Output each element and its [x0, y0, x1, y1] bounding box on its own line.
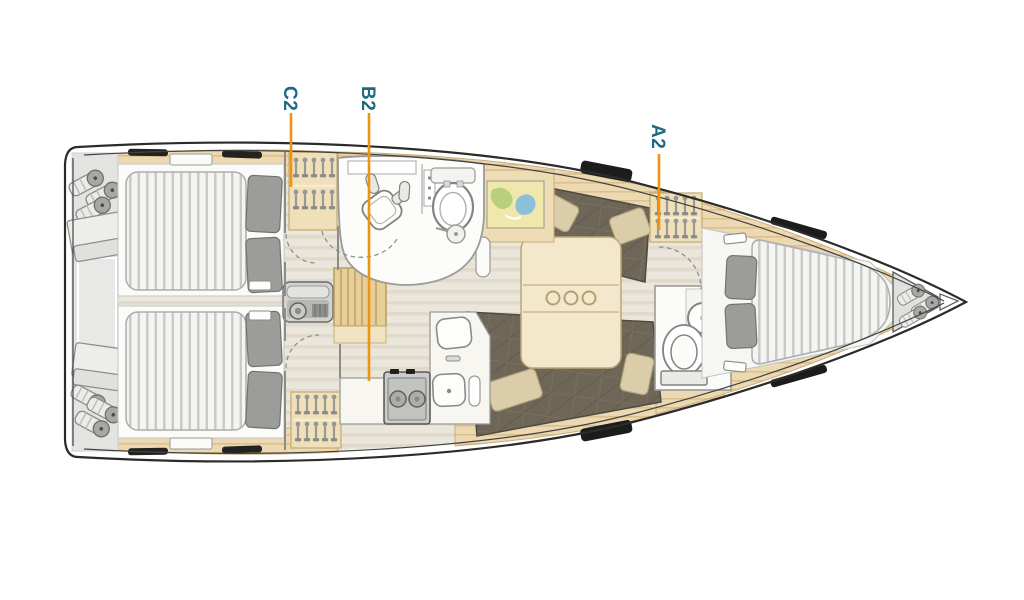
- head-shelf: [348, 161, 416, 174]
- hull-window: [222, 445, 262, 453]
- pillow: [725, 255, 757, 300]
- transom-mid-tray: [78, 258, 116, 348]
- toilet: [431, 168, 475, 231]
- salon-table: [521, 237, 621, 368]
- wardrobe-aft-starboard: [291, 392, 341, 448]
- deck-vent: [170, 438, 212, 449]
- wardrobe-aft-port: [289, 152, 337, 230]
- sink-basin: [436, 316, 473, 349]
- pillow: [246, 175, 283, 233]
- deck-vent: [170, 154, 212, 165]
- head-main: [338, 156, 484, 285]
- pillow: [246, 371, 283, 429]
- steps-landing: [334, 326, 386, 343]
- yacht-deck-plan: C2 B2 A2: [0, 0, 1024, 600]
- pillow: [725, 303, 757, 349]
- soap-tray: [469, 376, 480, 406]
- toilet: [661, 325, 707, 385]
- reading-lamp: [249, 281, 271, 290]
- stove: [384, 369, 430, 424]
- double-berth-mattress: [126, 312, 246, 430]
- aft-cabin-port: [118, 164, 284, 296]
- faucet-lever: [446, 356, 460, 361]
- callout-label-b2: B2: [357, 86, 378, 111]
- hull-window: [222, 150, 262, 158]
- reading-lamp: [249, 311, 271, 320]
- yacht-layout-figure: C2 B2 A2: [0, 0, 1024, 600]
- callout-label-a2: A2: [647, 124, 668, 149]
- reading-lamp: [724, 361, 747, 372]
- double-berth-mattress: [126, 172, 246, 290]
- drain-icon: [447, 389, 451, 393]
- engine-box: [283, 282, 333, 322]
- reading-lamp: [724, 233, 747, 244]
- callout-label-c2: C2: [279, 86, 300, 111]
- aft-cabin-starboard: [118, 306, 284, 438]
